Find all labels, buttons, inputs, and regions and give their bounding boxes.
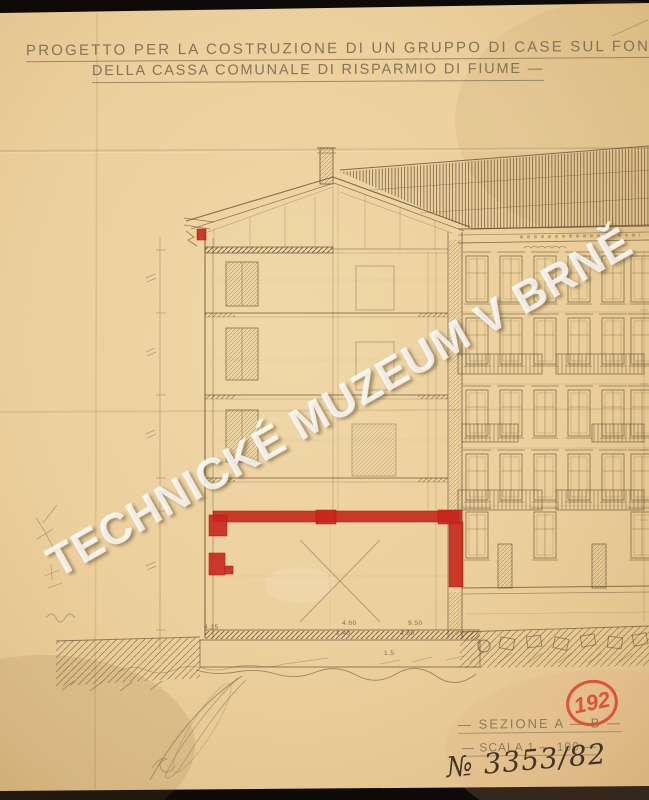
title-line-2: DELLA CASSA COMUNALE DI RISPARMIO DI FIU… — [92, 61, 544, 83]
foundation-annotation: 1.5 — [384, 650, 395, 657]
dim-annotation-d: 4.50 — [400, 630, 415, 637]
stamp-number: 192 — [571, 686, 612, 719]
dim-annotation-b: 9.50 — [408, 620, 423, 627]
dim-annotation-a: 4.60 — [342, 620, 357, 627]
dim-annotation-c: 1.40 — [336, 630, 351, 637]
scanned-architectural-drawing: PROGETTO PER LA COSTRUZIONE DI UN GRUPPO… — [0, 0, 649, 800]
dim-annotation-left: 4.35 — [204, 624, 219, 631]
